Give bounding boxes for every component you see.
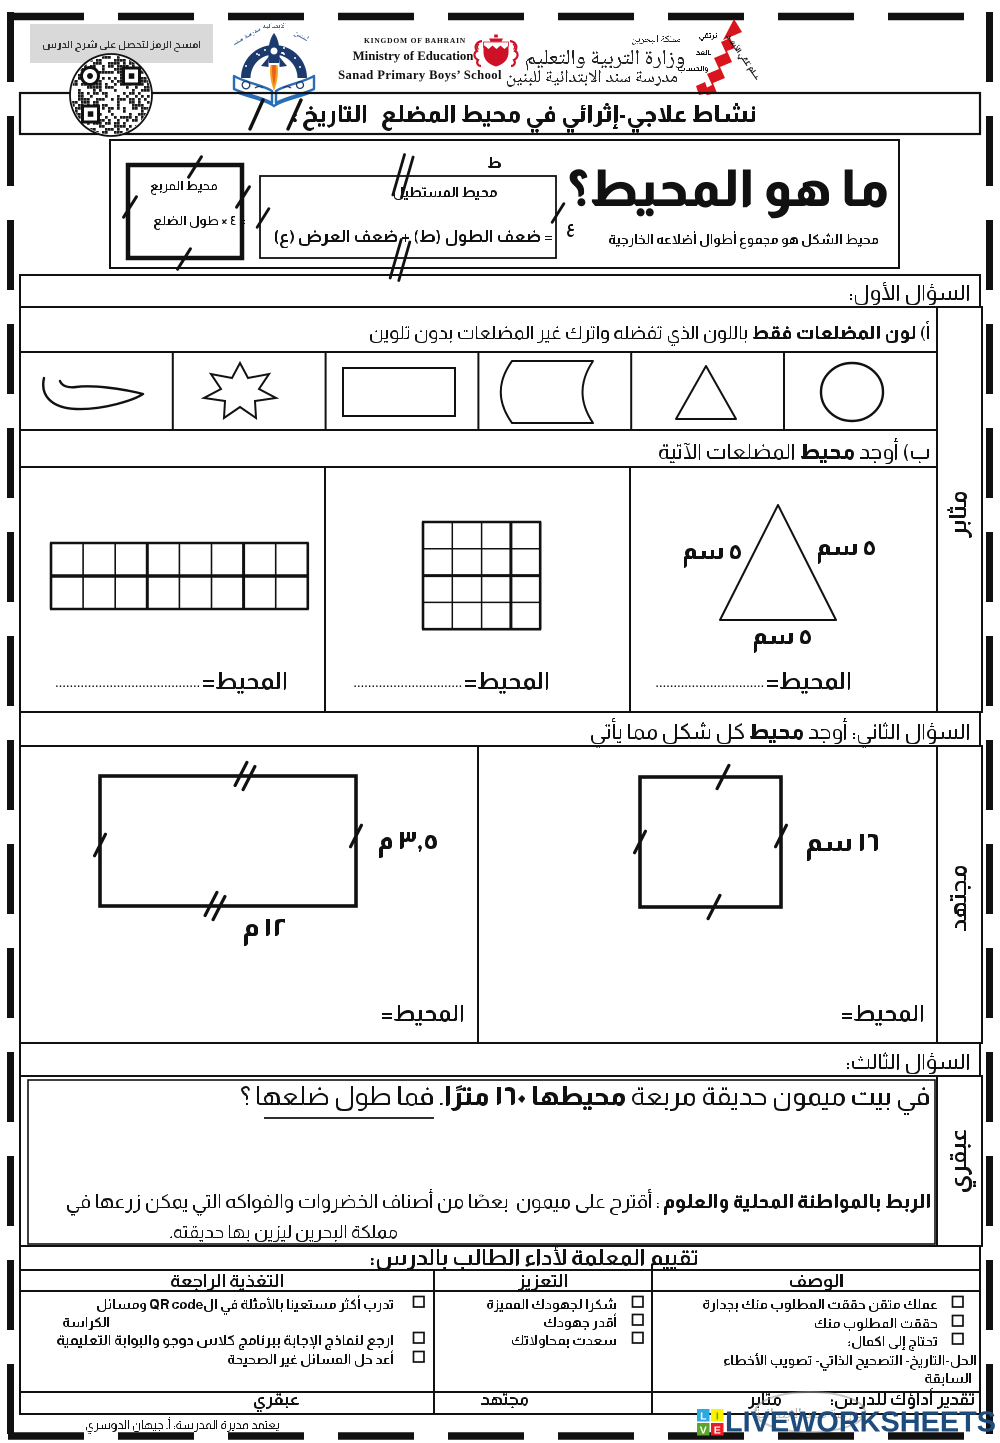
svg-text:V: V bbox=[700, 1425, 707, 1437]
svg-text:I: I bbox=[716, 1411, 719, 1423]
svg-text:LIVEWORKSHEETS: LIVEWORKSHEETS bbox=[725, 1407, 996, 1439]
svg-text:Sanad Primary Boys’ School: Sanad Primary Boys’ School bbox=[338, 68, 502, 82]
svg-text:L: L bbox=[700, 1411, 707, 1423]
svg-text:..............................: .............................. bbox=[655, 675, 764, 691]
svg-text:Ministry of Education: Ministry of Education bbox=[353, 49, 474, 63]
svg-text:KINGDOM OF BAHRAIN: KINGDOM OF BAHRAIN bbox=[364, 36, 466, 45]
svg-text:E: E bbox=[714, 1425, 721, 1437]
svg-text:..............................: .............................. bbox=[353, 675, 462, 691]
svg-text:..............................: ........................................ bbox=[55, 675, 200, 691]
